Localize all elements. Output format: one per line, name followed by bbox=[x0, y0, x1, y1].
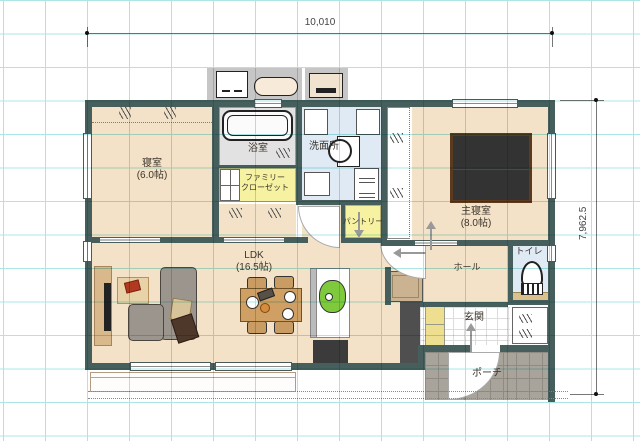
kitchen-counter-edge bbox=[310, 268, 317, 338]
ldk-label: LDK (16.5帖) bbox=[236, 250, 272, 274]
wall-entrance-top bbox=[420, 302, 508, 307]
porch-wall-right bbox=[500, 345, 548, 352]
ldk-bottom-window-2 bbox=[215, 362, 292, 371]
hall-arrow bbox=[400, 252, 426, 254]
cabinet-lines bbox=[359, 175, 375, 184]
dim-dot bbox=[85, 31, 89, 35]
dim-dot bbox=[594, 392, 598, 396]
double-bed bbox=[450, 133, 532, 203]
wall-bath-washroom bbox=[296, 107, 302, 204]
eaves-line bbox=[88, 391, 568, 392]
bowl bbox=[260, 303, 270, 313]
wall-ldk-hall bbox=[385, 267, 391, 305]
wall-toilet-bottom bbox=[508, 300, 548, 305]
porch-label: ポーチ bbox=[472, 368, 502, 380]
dining-chair bbox=[274, 321, 294, 334]
bedroom-sliding-door bbox=[100, 238, 160, 242]
ldk-name: LDK bbox=[244, 250, 263, 261]
washroom-cabinet bbox=[354, 168, 379, 202]
ac-slot bbox=[316, 88, 336, 93]
vanity-cabinet-2 bbox=[356, 109, 380, 135]
sink-detail bbox=[325, 293, 333, 301]
hall-label: ホール bbox=[453, 262, 480, 273]
family-closet-line1: ファミリー bbox=[245, 173, 285, 182]
master-name: 主寝室 bbox=[461, 206, 491, 217]
master-bedroom-label: 主寝室 (8.0帖) bbox=[461, 206, 492, 230]
dimension-height-label: 7,962.5 bbox=[578, 207, 589, 240]
sofa-bottom-section bbox=[128, 304, 164, 341]
corridor-arrow-head bbox=[354, 230, 364, 238]
ldk-left-window bbox=[83, 241, 92, 262]
hall-arrow-head bbox=[393, 248, 401, 258]
dim-dot bbox=[594, 98, 598, 102]
floor-plan-canvas: 10,010 7,962.5 寝室 (6.0帖) 浴室 洗面所 ファミリー クロ… bbox=[0, 0, 640, 441]
master-right-window bbox=[547, 133, 556, 199]
plate bbox=[284, 291, 296, 303]
master-size: (8.0帖) bbox=[461, 218, 492, 229]
porch-name: ポーチ bbox=[472, 368, 502, 379]
bedroom-wall-mark bbox=[119, 107, 131, 119]
kitchen-sink-green bbox=[319, 280, 346, 313]
shoe-cabinet-divider bbox=[426, 324, 444, 325]
master-top-window bbox=[452, 99, 518, 108]
water-heater-unit bbox=[216, 71, 248, 98]
bath-window bbox=[254, 99, 282, 108]
hall-name: ホール bbox=[453, 262, 480, 272]
bath-door-mark bbox=[276, 148, 290, 158]
washroom-storage bbox=[304, 172, 330, 196]
toilet-tank bbox=[521, 283, 543, 295]
bedroom-window bbox=[83, 133, 92, 199]
dining-chair bbox=[247, 321, 267, 334]
entry-arrow bbox=[470, 330, 472, 352]
ldk-floor-patch bbox=[386, 305, 400, 363]
dimension-line-top bbox=[88, 33, 553, 34]
closet-door-mark bbox=[390, 133, 403, 143]
walkthrough-door-mark bbox=[229, 208, 242, 218]
wall-bedroom-bath bbox=[212, 107, 219, 243]
dimension-width-label: 10,010 bbox=[305, 17, 336, 28]
walkthrough-sliding-door bbox=[224, 238, 284, 242]
wall-toilet-left bbox=[508, 245, 513, 303]
tall-cabinet-dark bbox=[400, 302, 420, 363]
bedroom-size: (6.0帖) bbox=[137, 170, 168, 181]
cabinet-inner-line bbox=[392, 275, 419, 298]
bedroom-wall-mark bbox=[164, 107, 176, 119]
wall-step bbox=[418, 345, 425, 370]
wood-deck bbox=[90, 372, 296, 392]
wall-bath-fc bbox=[219, 165, 296, 168]
family-closet-label: ファミリー クローゼット bbox=[241, 173, 289, 192]
walkthrough-door-mark bbox=[268, 208, 281, 218]
entrance-label: 玄関 bbox=[464, 312, 484, 324]
washroom-label: 洗面所 bbox=[309, 141, 339, 153]
shoe-closet bbox=[512, 307, 548, 344]
ldk-bottom-window-1 bbox=[130, 362, 211, 371]
cabinet-lines bbox=[359, 190, 375, 199]
vanity-cabinet bbox=[304, 109, 328, 135]
bath-name: 浴室 bbox=[248, 143, 268, 154]
washroom-name: 洗面所 bbox=[309, 141, 339, 152]
closet-door-mark bbox=[390, 188, 403, 198]
eaves-line bbox=[88, 398, 568, 399]
bed-center-line bbox=[453, 169, 529, 170]
vent-slot bbox=[234, 90, 242, 92]
pantry-label: パントリー bbox=[343, 217, 383, 227]
entrance-shoe-cabinet bbox=[425, 302, 445, 347]
hot-water-tank bbox=[254, 77, 298, 96]
shoe-closet-door-mark bbox=[519, 314, 532, 323]
master-closet-floor bbox=[387, 107, 410, 239]
bedroom-closet bbox=[92, 107, 212, 123]
entrance-name: 玄関 bbox=[464, 312, 484, 323]
bathtub-inner bbox=[227, 115, 288, 136]
bath-label: 浴室 bbox=[248, 143, 268, 155]
shoe-closet-door-mark bbox=[519, 329, 532, 338]
pantry-name: パントリー bbox=[343, 217, 383, 226]
toilet-window bbox=[547, 245, 556, 262]
dim-ext-bottom-right bbox=[570, 394, 604, 395]
family-closet-line2: クローゼット bbox=[241, 183, 289, 192]
vent-slot bbox=[222, 90, 230, 92]
dim-dot bbox=[550, 31, 554, 35]
bedroom-name: 寝室 bbox=[142, 158, 162, 169]
dim-ext-left bbox=[87, 27, 88, 47]
porch-wall-left bbox=[425, 345, 470, 352]
master-door-arrow-head bbox=[426, 221, 436, 229]
toilet-label: トイレ bbox=[515, 246, 542, 257]
family-closet-shelf bbox=[220, 169, 240, 201]
tv bbox=[104, 283, 111, 331]
toilet-name: トイレ bbox=[515, 246, 542, 256]
dimension-line-right bbox=[596, 100, 597, 395]
bathtub bbox=[222, 110, 293, 141]
master-door-arrow bbox=[430, 228, 432, 250]
dim-ext-right bbox=[552, 27, 553, 47]
entry-arrow-head bbox=[466, 323, 476, 331]
shelf-divider bbox=[221, 185, 239, 186]
plate bbox=[282, 308, 294, 320]
plate bbox=[246, 296, 259, 309]
bedroom-label: 寝室 (6.0帖) bbox=[137, 158, 168, 182]
deck-line bbox=[91, 377, 295, 378]
ldk-size: (16.5帖) bbox=[236, 262, 272, 273]
ac-outdoor-unit bbox=[309, 73, 343, 98]
master-sliding-door bbox=[415, 241, 457, 245]
